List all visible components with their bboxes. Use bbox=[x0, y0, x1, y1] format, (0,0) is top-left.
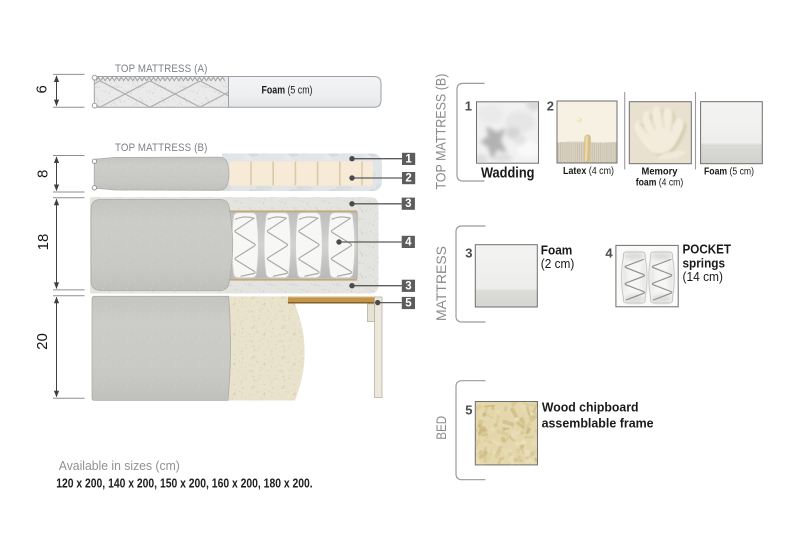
svg-text:18: 18 bbox=[35, 234, 52, 251]
svg-text:foam (4 cm): foam (4 cm) bbox=[636, 177, 684, 188]
svg-text:3: 3 bbox=[465, 246, 472, 261]
svg-text:Wood chipboard: Wood chipboard bbox=[542, 400, 639, 415]
svg-text:120 x 200, 140 x 200, 150 x 20: 120 x 200, 140 x 200, 150 x 200, 160 x 2… bbox=[56, 475, 313, 490]
svg-text:TOP MATTRESS (A): TOP MATTRESS (A) bbox=[115, 63, 208, 75]
svg-text:BED: BED bbox=[434, 416, 449, 440]
svg-text:assemblable frame: assemblable frame bbox=[542, 415, 654, 430]
svg-text:20: 20 bbox=[34, 333, 51, 350]
svg-text:Foam (5 cm): Foam (5 cm) bbox=[704, 167, 754, 178]
svg-text:Wadding: Wadding bbox=[481, 165, 535, 182]
svg-text:5: 5 bbox=[405, 298, 412, 310]
svg-text:2: 2 bbox=[547, 99, 554, 114]
svg-text:5: 5 bbox=[465, 403, 472, 418]
svg-text:POCKET: POCKET bbox=[683, 243, 732, 257]
svg-text:8: 8 bbox=[35, 170, 52, 178]
svg-text:TOP MATTRESS (B): TOP MATTRESS (B) bbox=[434, 74, 449, 190]
svg-text:4: 4 bbox=[605, 246, 613, 261]
svg-text:(2 cm): (2 cm) bbox=[541, 257, 575, 271]
svg-text:(14 cm): (14 cm) bbox=[683, 270, 724, 284]
svg-text:1: 1 bbox=[465, 99, 472, 114]
svg-text:MATTRESS: MATTRESS bbox=[434, 246, 449, 321]
svg-text:3: 3 bbox=[405, 280, 411, 292]
svg-text:Foam (5 cm): Foam (5 cm) bbox=[262, 85, 313, 97]
svg-text:TOP MATTRESS (B): TOP MATTRESS (B) bbox=[115, 142, 208, 154]
svg-text:springs: springs bbox=[683, 257, 726, 271]
svg-text:Memory: Memory bbox=[642, 167, 678, 178]
svg-text:1: 1 bbox=[405, 153, 412, 165]
svg-text:3: 3 bbox=[405, 198, 411, 210]
svg-text:Available in sizes (cm): Available in sizes (cm) bbox=[59, 458, 180, 473]
svg-text:4: 4 bbox=[405, 236, 412, 248]
svg-text:Foam: Foam bbox=[541, 243, 573, 257]
svg-text:Latex (4 cm): Latex (4 cm) bbox=[563, 166, 614, 177]
svg-text:6: 6 bbox=[34, 85, 51, 93]
svg-text:2: 2 bbox=[405, 173, 411, 185]
